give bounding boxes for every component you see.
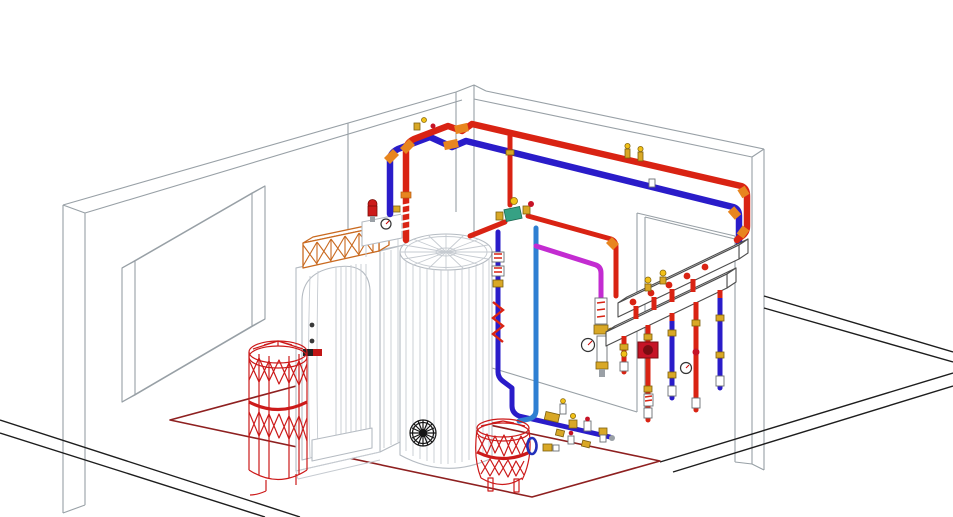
boiler-indicator-led bbox=[310, 339, 315, 344]
cad-viewport bbox=[0, 0, 953, 517]
circulation-pump bbox=[638, 342, 658, 358]
boiler-indicator-led bbox=[310, 323, 315, 328]
tank-flange bbox=[528, 438, 537, 454]
distribution-manifold bbox=[606, 239, 748, 346]
window-opening bbox=[122, 186, 265, 402]
bottom-run-fittings bbox=[544, 399, 615, 442]
tank-side-valve bbox=[543, 444, 559, 451]
boiler bbox=[296, 245, 404, 479]
mixed-water-pipe bbox=[536, 246, 601, 298]
tank-top-spokes bbox=[400, 234, 492, 270]
pump-rosette bbox=[410, 420, 436, 446]
cold-water-pipe bbox=[519, 228, 536, 421]
riser-fittings bbox=[492, 252, 504, 287]
